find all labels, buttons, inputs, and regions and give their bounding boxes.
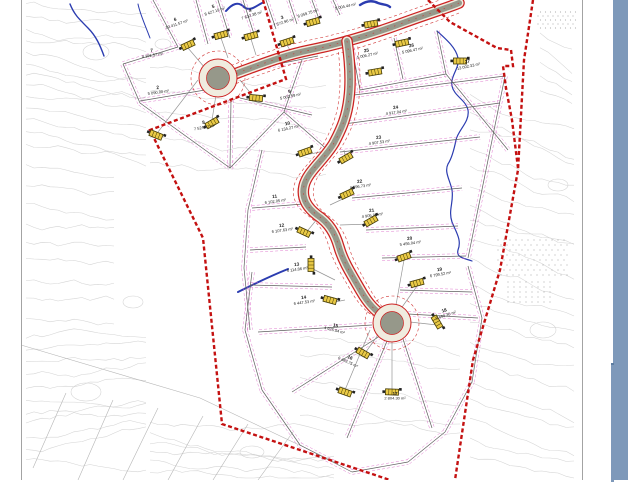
svg-text:6 447.53 m²: 6 447.53 m² <box>293 298 315 306</box>
svg-text:5 090.00 m²: 5 090.00 m² <box>147 88 169 96</box>
subdivision-plan-map: 610 411.57 m²58 427.19 m²47 632.38 m²37 … <box>0 0 640 480</box>
svg-text:4 917.04 m²: 4 917.04 m² <box>385 108 407 116</box>
svg-text:10 411.57 m²: 10 411.57 m² <box>165 18 189 30</box>
sheet-border-left <box>21 0 22 480</box>
svg-text:4 191.57 m²: 4 191.57 m² <box>141 51 163 59</box>
svg-text:4 896.73 m²: 4 896.73 m² <box>349 182 371 190</box>
sheet-border-right <box>582 0 583 480</box>
svg-text:6 134.27 m²: 6 134.27 m² <box>277 123 300 132</box>
svg-text:4 907.53 m²: 4 907.53 m² <box>368 138 390 146</box>
svg-text:6 799.52 m²: 6 799.52 m² <box>429 270 452 279</box>
window-scrollbar-thumb[interactable] <box>613 0 628 480</box>
plan-viewer: 610 411.57 m²58 427.19 m²47 632.38 m²37 … <box>0 0 640 480</box>
svg-text:5 004.44 m²: 5 004.44 m² <box>334 1 357 10</box>
svg-text:5 096.47 m²: 5 096.47 m² <box>401 45 424 54</box>
svg-text:6 114.86 m²: 6 114.86 m² <box>287 265 309 273</box>
svg-text:5 006.27 m²: 5 006.27 m² <box>356 50 379 59</box>
svg-text:7 572.96 m²: 7 572.96 m² <box>273 16 295 28</box>
svg-text:5 456.04 m²: 5 456.04 m² <box>399 239 421 247</box>
svg-text:5 002.59 m²: 5 002.59 m² <box>279 91 302 100</box>
svg-text:2 804.30 m²: 2 804.30 m² <box>384 396 406 401</box>
svg-text:7 524.57 m²: 7 524.57 m² <box>193 123 216 132</box>
svg-text:6 102.05 m²: 6 102.05 m² <box>264 197 286 205</box>
svg-text:6 107.63 m²: 6 107.63 m² <box>271 226 293 234</box>
window-scrollbar-step[interactable] <box>611 363 614 482</box>
